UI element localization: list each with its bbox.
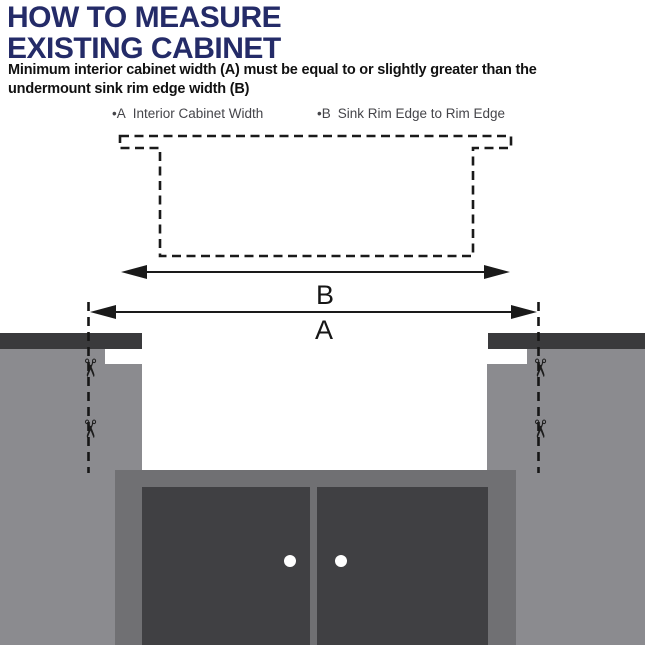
arrowhead-right-icon — [511, 305, 537, 319]
arrowhead-left-icon — [121, 265, 147, 279]
dimension-label-b: B — [316, 282, 334, 309]
cabinet-interior — [142, 349, 487, 470]
sink-rim-outline — [120, 136, 511, 256]
arrowhead-right-icon — [484, 265, 510, 279]
door-knob-right — [335, 555, 347, 567]
scissors-icon: ✂ — [77, 358, 102, 379]
scissors-icon: ✂ — [77, 419, 102, 440]
countertop-left — [0, 333, 142, 349]
scissors-icon: ✂ — [527, 419, 552, 440]
cabinet-door-left — [142, 487, 310, 645]
dimension-label-a: A — [315, 317, 333, 344]
countertop-right — [488, 333, 645, 349]
measure-cabinet-infographic: HOW TO MEASURE EXISTING CABINET Minimum … — [0, 0, 645, 645]
dimension-arrow-a — [90, 305, 537, 319]
dimension-arrow-b — [121, 265, 510, 279]
scissors-icon: ✂ — [527, 358, 552, 379]
door-knob-left — [284, 555, 296, 567]
arrowhead-left-icon — [90, 305, 116, 319]
